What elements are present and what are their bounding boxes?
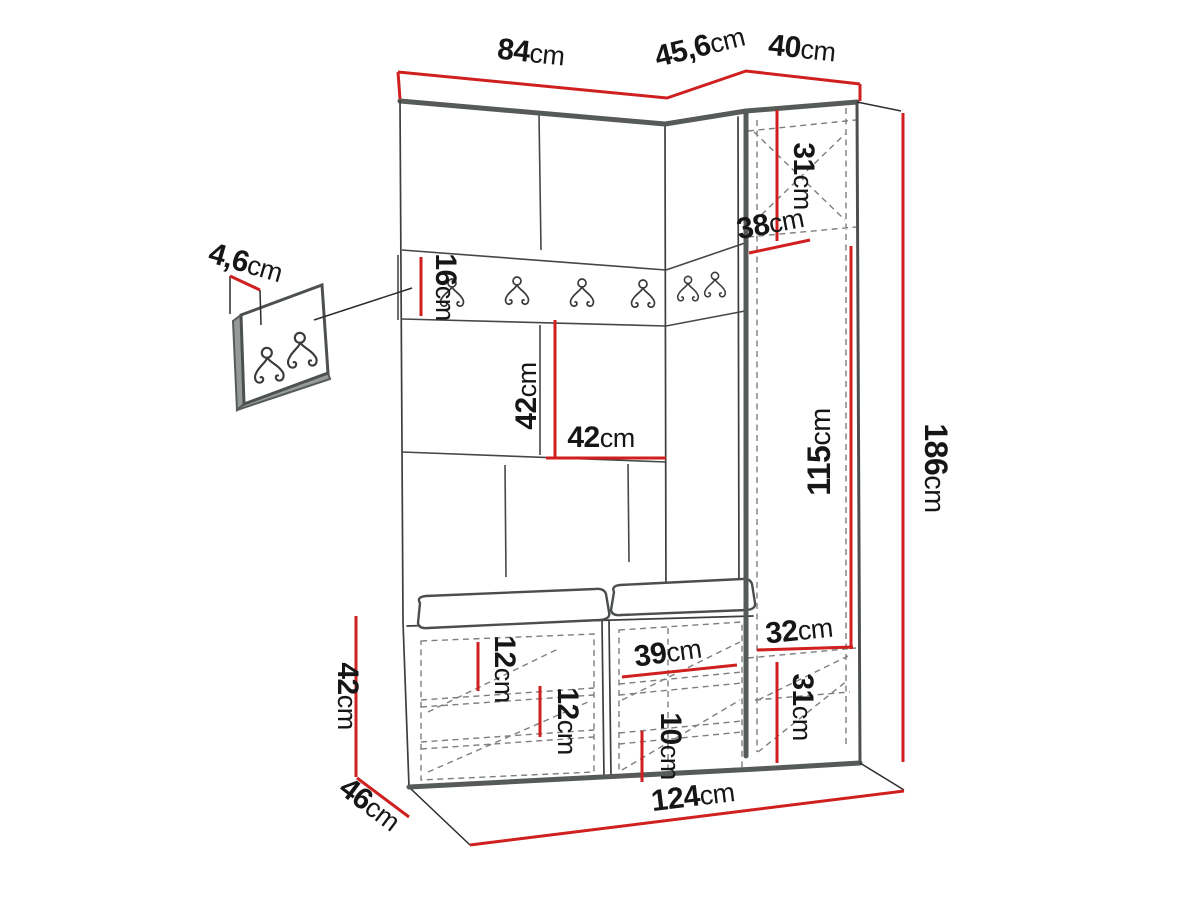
dim-label-top-corner-depth: 45,6cm bbox=[651, 20, 748, 74]
dim-label-bench-depth: 46cm bbox=[333, 771, 407, 838]
dim-label-top-side-width: 40cm bbox=[767, 29, 837, 69]
main-wall-face bbox=[400, 101, 666, 622]
dim-label-side-bottom-height: 31cm bbox=[786, 673, 819, 740]
wall-hook-panel-detail bbox=[230, 276, 412, 410]
dim-line-top-widths bbox=[398, 71, 860, 101]
seat-cushion-right bbox=[611, 579, 755, 615]
coat-hook-icon bbox=[285, 331, 317, 368]
furniture-dimension-diagram-page: 84cm 45,6cm 40cm 31cm 38cm 16cm 42cm 42c… bbox=[0, 0, 1200, 899]
dim-label-total-height: 186cm bbox=[918, 423, 954, 512]
dim-label-top-cabinet-height: 31cm bbox=[787, 142, 820, 209]
dim-label-mid-panel-width: 42cm bbox=[567, 421, 634, 454]
coat-hook-icon bbox=[252, 346, 284, 383]
hallway-wardrobe-diagram: 84cm 45,6cm 40cm 31cm 38cm 16cm 42cm 42c… bbox=[0, 0, 1200, 899]
dim-label-rail-height: 16cm bbox=[429, 253, 462, 320]
dim-label-bench-height: 42cm bbox=[331, 662, 364, 729]
dim-label-side-column-height: 115cm bbox=[801, 408, 837, 496]
dim-label-mid-panel-height: 42cm bbox=[510, 362, 543, 429]
dim-label-middle-shelf-gap: 10cm bbox=[654, 712, 687, 779]
dim-label-hook-panel-thickness: 4,6cm bbox=[205, 237, 286, 289]
dim-label-left-shelf-gap-b: 12cm bbox=[551, 687, 584, 754]
dim-label-left-shelf-gap-a: 12cm bbox=[488, 635, 521, 702]
hook-panel-front bbox=[241, 285, 328, 404]
corner-angled-face bbox=[665, 111, 746, 612]
dim-label-total-width: 124cm bbox=[649, 775, 736, 818]
dim-label-top-main-width: 84cm bbox=[496, 33, 566, 73]
